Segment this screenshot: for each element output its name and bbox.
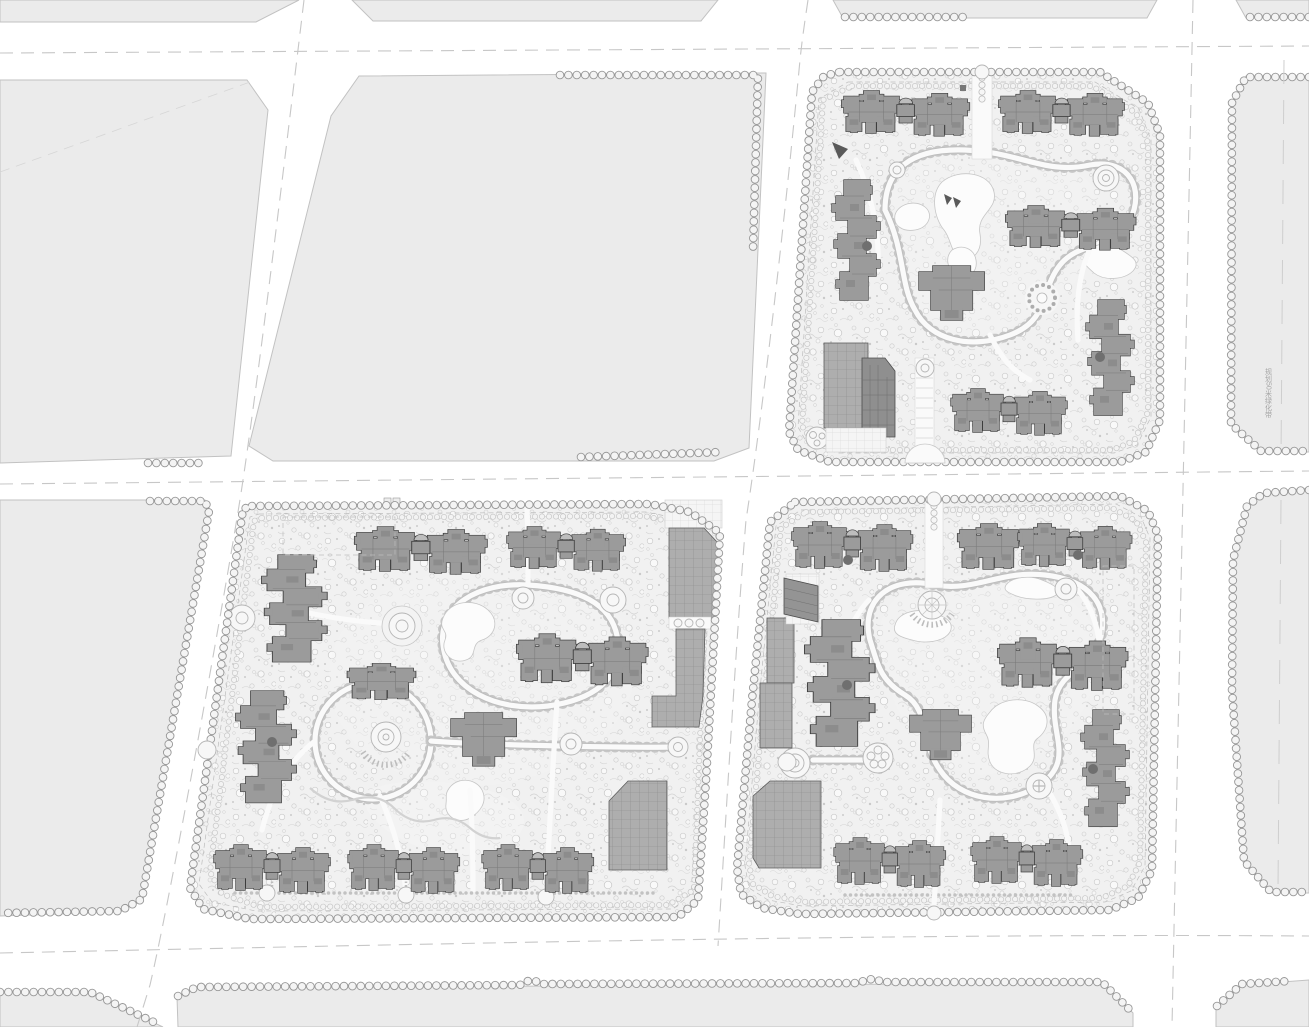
- svg-text:规划50米绿化带: 规划50米绿化带: [1265, 367, 1273, 419]
